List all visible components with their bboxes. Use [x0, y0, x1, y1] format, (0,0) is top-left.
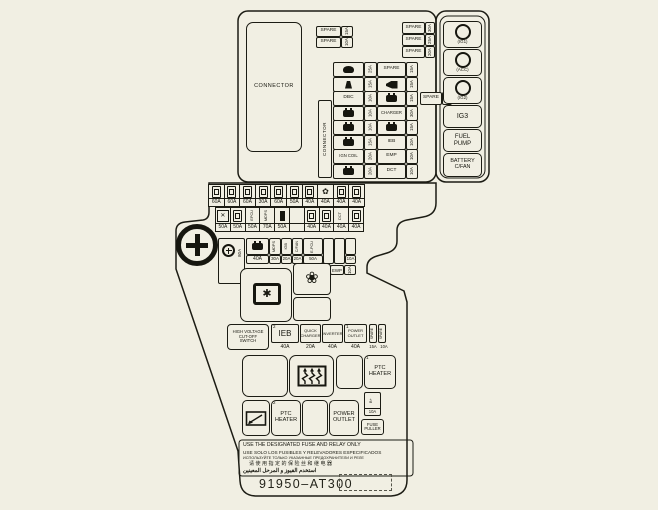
- fuse-cell: [289, 207, 305, 232]
- fuse-cell: 60A: [224, 184, 241, 207]
- warning-line-en: USE THE DESIGNATED FUSE AND RELAY ONLY: [243, 442, 411, 450]
- amp-label: 40A: [271, 344, 299, 351]
- battery-icon: [343, 124, 354, 131]
- fuse-cell: [323, 238, 334, 264]
- inverter-fuse: INVERTER: [322, 324, 343, 343]
- connector-label: CONNECTOR: [254, 84, 294, 90]
- fuse-cell: IGB: [281, 238, 292, 255]
- fuse-icon: [212, 186, 221, 198]
- fuse-icon: [322, 210, 331, 222]
- fuse-cell: ✕50A: [215, 207, 231, 232]
- fuse-row: EMP 10A: [377, 149, 418, 164]
- fuse-cell: [345, 238, 356, 255]
- battery-icon: [252, 243, 263, 250]
- fuse-icon: [227, 186, 236, 198]
- ptc-fuse: B+ 10A: [364, 392, 381, 416]
- fuse-row: IGN COIL 20A: [333, 149, 377, 164]
- empty-box: [293, 297, 331, 321]
- fuse-cell: 40A: [319, 207, 335, 232]
- fuse-icon: [233, 210, 242, 222]
- fuse-icon: [280, 211, 285, 221]
- fuse-cell: 60A: [208, 184, 225, 207]
- relay-coil-icon: [455, 52, 471, 68]
- relay-box-empty: [242, 355, 288, 397]
- fuse-row: SPARE 15A: [377, 62, 418, 77]
- fuse-cell: 50A: [274, 207, 290, 232]
- battery-icon: [343, 168, 354, 175]
- amp-label: 40A: [246, 255, 269, 264]
- ptc-heater-relay-1: 1 PTC HEATER: [364, 355, 396, 389]
- battery-icon: [386, 95, 397, 102]
- fuse-row: 15A: [333, 135, 377, 150]
- side-fuse: SPARE: [378, 324, 386, 343]
- star-icon: ✱: [262, 289, 271, 300]
- relay-box-empty: [336, 355, 363, 389]
- ewp-fuse: EWP 10A: [330, 265, 356, 275]
- fuse-cell: [334, 238, 345, 264]
- engine-fuse-box-diagram: CONNECTOR SPARE 15A SPARE 10A SPARE 30A …: [0, 0, 658, 510]
- fuse-cell: 60A: [239, 184, 256, 207]
- fuse-icon: [305, 186, 314, 198]
- fuse-row: 25A: [333, 62, 377, 77]
- battery-icon: [386, 124, 397, 131]
- terminal-icon: [222, 244, 235, 257]
- fuse-cell: 50A: [286, 184, 303, 207]
- spare-fuse: SPARE 20A: [402, 46, 435, 58]
- main-relay-block: ✱: [240, 268, 292, 322]
- fuse-cell: [246, 238, 269, 255]
- fan-icon: ✿: [322, 188, 329, 196]
- connector-side-block: CONNECTOR: [318, 100, 332, 178]
- power-outlet-fuse: 1 POWER OUTLET: [344, 324, 367, 343]
- battery-icon: [343, 110, 354, 117]
- spare-fuse: SPARE 15A: [316, 26, 353, 37]
- fuse-row: CHARGER 30A: [377, 106, 418, 121]
- fuse-cell: ✿40A: [317, 184, 334, 207]
- rear-defroster-relay-box: [289, 355, 334, 397]
- plus-icon: [195, 234, 200, 256]
- fuse-row: 10A: [333, 106, 377, 121]
- amp-label: 40A: [344, 344, 367, 351]
- amp-label: 30A: [269, 255, 281, 264]
- spare-fuse: SPARE 30A: [402, 22, 435, 34]
- fuse-cell: 40A: [302, 184, 319, 207]
- fuse-strip-row-b: ✕50A 50A EPCU50A MDPS70A 50A 40A 40A DCT…: [216, 207, 364, 232]
- fuse-row: IEB 10A: [377, 135, 418, 150]
- fuse-cell: E-PCU: [303, 238, 323, 255]
- relay-fuel-pump: FUEL PUMP: [443, 129, 482, 152]
- fuse-icon: [290, 186, 299, 198]
- horn-icon: [386, 81, 398, 89]
- fuse-icon: [307, 210, 316, 222]
- amp-label: 10A: [345, 255, 356, 264]
- relay-coil-icon: [455, 80, 471, 96]
- fuse-cell: 40A: [348, 207, 364, 232]
- heater-icon: [297, 365, 327, 387]
- fuse-row: 10A: [333, 120, 377, 135]
- fuse-row: 15A: [333, 77, 377, 92]
- fuse-icon: [352, 186, 361, 198]
- fuse-strip-row-a: 60A 60A 60A 30A 60A 50A 40A ✿40A 40A 40A: [209, 184, 365, 207]
- fuse-cell: 40A: [348, 184, 365, 207]
- ptc-heater-relay-2: 2 PTC HEATER: [271, 400, 301, 436]
- fuse-row: DCT 10A: [377, 164, 418, 179]
- quick-charger-fuse: QUICK CHARGER: [300, 324, 321, 343]
- fuse-cell: 40A: [333, 184, 350, 207]
- fuse-row: DBC 10A: [333, 91, 377, 106]
- battery-icon: [343, 139, 354, 146]
- rear-window-icon: [245, 410, 267, 427]
- fuse-row: 15A: [377, 120, 418, 135]
- fuse-row: 20A: [333, 164, 377, 179]
- jump-start-positive-terminal: [176, 224, 218, 266]
- connector-block: CONNECTOR: [246, 22, 302, 152]
- relay-battery-cfan: BATTERY C/FAN: [443, 153, 482, 177]
- amp-label: 20A: [281, 255, 292, 264]
- fuse-cell: MDPS70A: [259, 207, 275, 232]
- cooling-fan-box: ❀: [293, 263, 331, 295]
- fuse-icon: [259, 186, 268, 198]
- amp-label: 40A: [322, 344, 343, 351]
- spare-fuse: SPARE 10A: [316, 37, 353, 48]
- fuse-cell: MDPS: [269, 238, 281, 255]
- fuse-cell: C/FAN: [292, 238, 303, 255]
- relay-ig2: (IG2): [443, 77, 482, 104]
- relay-box-empty: [302, 400, 328, 436]
- fuse-cell: DCT40A: [333, 207, 349, 232]
- wiper-icon: [343, 66, 354, 73]
- fuse-icon: [243, 186, 252, 198]
- fuse-icon: [352, 210, 361, 222]
- amp-label: 10A: [378, 344, 390, 351]
- fan-icon: ❀: [305, 271, 318, 287]
- spare-fuse: SPARE 25A: [402, 34, 435, 46]
- fuse-row: 15A: [377, 77, 418, 92]
- fuse-cell: 30A: [255, 184, 272, 207]
- power-outlet-relay: POWER OUTLET: [329, 400, 359, 436]
- side-fuse: SPARE: [369, 324, 377, 343]
- fuse-cell: EPCU50A: [245, 207, 261, 232]
- barcode-area: [339, 474, 392, 491]
- relay-ig3: IG3: [443, 105, 482, 128]
- fan-box-icon: ✕: [217, 210, 229, 222]
- fuse-cell: 50A: [230, 207, 246, 232]
- fuse-puller: FUSE PULLER: [361, 419, 384, 435]
- warning-text-block: USE THE DESIGNATED FUSE AND RELAY ONLY U…: [243, 442, 411, 475]
- rear-window-relay-box: [242, 400, 270, 436]
- relay-icon: ✱: [253, 283, 281, 305]
- fuse-cell: 40A: [304, 207, 320, 232]
- ieb-fuse: 2 IEB: [271, 324, 299, 343]
- high-voltage-cutoff-switch: HIGH VOLTAGE CUT-OFF SWITCH: [227, 324, 269, 350]
- amp-label: 20A: [300, 344, 321, 351]
- relay-ig1: (IG1): [443, 21, 482, 48]
- fuse-icon: [337, 186, 346, 198]
- warning-line-zh: 请使用指定的保险丝和继电器: [243, 461, 411, 468]
- fuse-cell: 60A: [270, 184, 287, 207]
- washer-icon: [344, 81, 354, 89]
- fuse-row: 15A: [377, 91, 418, 106]
- fuse-icon: [274, 186, 283, 198]
- relay-acc: (ACC): [443, 49, 482, 76]
- relay-coil-icon: [455, 24, 471, 40]
